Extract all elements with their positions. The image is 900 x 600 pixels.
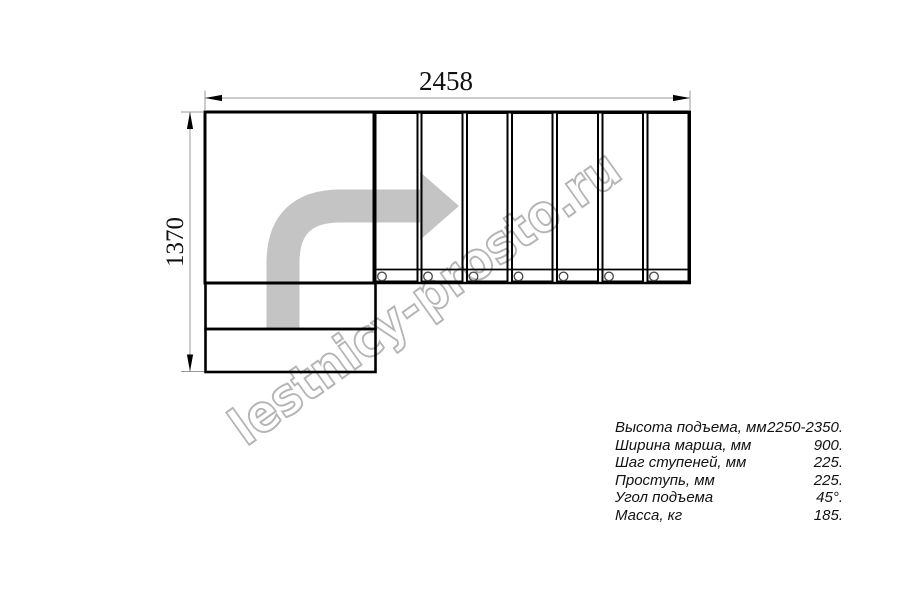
dimension-width: 2458 xyxy=(205,66,690,111)
spec-label: Шаг ступеней, мм xyxy=(615,454,746,472)
spec-value: 45°. xyxy=(816,489,843,507)
specs-table: Высота подъема, мм 2250-2350. Ширина мар… xyxy=(615,419,843,525)
spec-row-angle: Угол подъема 45°. xyxy=(615,489,843,507)
fastener-circle-icon xyxy=(605,272,614,281)
spec-label: Проступь, мм xyxy=(615,472,715,490)
dimension-height: 1370 xyxy=(162,112,204,372)
spec-value: 225. xyxy=(814,454,843,472)
spec-row-height: Высота подъема, мм 2250-2350. xyxy=(615,419,843,437)
direction-arrow-head xyxy=(420,172,459,240)
fastener-circle-icon xyxy=(514,272,523,281)
spec-value: 900. xyxy=(814,437,843,455)
spec-row-mass: Масса, кг 185. xyxy=(615,507,843,525)
dimension-arrow-right-icon xyxy=(673,95,690,101)
dimension-arrow-left-icon xyxy=(205,95,222,101)
fastener-circle-icon xyxy=(559,272,568,281)
spec-row-flight-width: Ширина марша, мм 900. xyxy=(615,437,843,455)
stair-drawing-canvas: lestnicy-prosto.ru xyxy=(0,0,900,600)
dimension-width-label: 2458 xyxy=(419,66,473,96)
fastener-circle-icon xyxy=(650,272,659,281)
dimension-arrow-down-icon xyxy=(187,355,193,372)
dimension-height-label: 1370 xyxy=(162,217,189,267)
spec-value: 185. xyxy=(814,507,843,525)
fastener-circle-icon xyxy=(378,272,387,281)
spec-label: Угол подъема xyxy=(615,489,713,507)
spec-value: 2250-2350. xyxy=(767,419,843,437)
spec-label: Высота подъема, мм xyxy=(615,419,767,437)
spec-label: Ширина марша, мм xyxy=(615,437,751,455)
spec-value: 225. xyxy=(814,472,843,490)
spec-row-step-pitch: Шаг ступеней, мм 225. xyxy=(615,454,843,472)
dimension-arrow-up-icon xyxy=(187,112,193,129)
spec-label: Масса, кг xyxy=(615,507,682,525)
tread-board-7 xyxy=(648,113,689,282)
spec-row-tread-depth: Проступь, мм 225. xyxy=(615,472,843,490)
